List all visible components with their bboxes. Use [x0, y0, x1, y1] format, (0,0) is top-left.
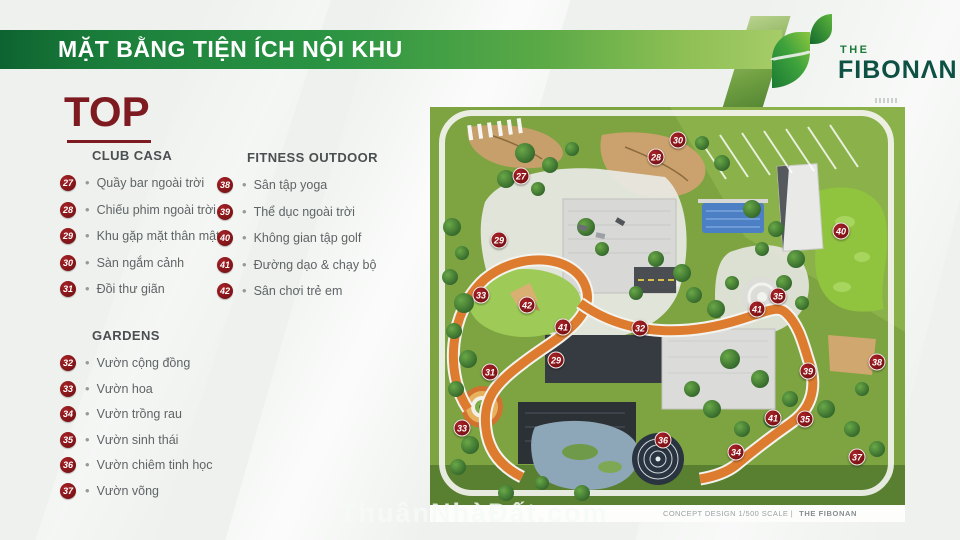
- legend-label: Quầy bar ngoài trời: [97, 176, 205, 190]
- map-marker-29: 29: [548, 352, 565, 369]
- bullet-icon: •: [85, 281, 90, 297]
- legend-item: 33 • Vườn hoa: [60, 381, 250, 397]
- map-marker-38: 38: [869, 354, 886, 371]
- legend-item: 40 • Không gian tập golf: [217, 230, 407, 246]
- bullet-icon: •: [85, 457, 90, 473]
- map-marker-29: 29: [491, 232, 508, 249]
- legend-marker: 27: [60, 175, 76, 191]
- legend-label: Vườn cộng đồng: [97, 356, 191, 370]
- legend-label: Vườn trồng rau: [97, 407, 182, 421]
- legend-marker: 30: [60, 255, 76, 271]
- map-marker-40: 40: [833, 223, 850, 240]
- bullet-icon: •: [85, 355, 90, 371]
- map-marker-41: 41: [555, 319, 572, 336]
- slide: MẶT BẰNG TIỆN ÍCH NỘI KHU THE FIBONΛN TO…: [0, 0, 960, 540]
- legend-label: Khu gặp mặt thân mật: [97, 229, 220, 243]
- legend-marker: 34: [60, 406, 76, 422]
- legend-label: Thể dục ngoài trời: [254, 205, 355, 219]
- legend-group-title: GARDENS: [92, 328, 250, 343]
- map-marker-41: 41: [765, 410, 782, 427]
- bullet-icon: •: [85, 406, 90, 422]
- legend-marker: 31: [60, 281, 76, 297]
- legend-item: 36 • Vườn chiêm tinh học: [60, 457, 250, 473]
- legend-label: Sân chơi trẻ em: [254, 284, 343, 298]
- legend-item: 34 • Vườn trồng rau: [60, 406, 250, 422]
- map-marker-32: 32: [632, 320, 649, 337]
- legend-label: Vườn sinh thái: [97, 433, 179, 447]
- bullet-icon: •: [242, 204, 247, 220]
- masterplan-image: 27 28 30 29 40 33 42 41 32 35 41 29 31 3…: [430, 107, 905, 505]
- legend-label: Vườn hoa: [97, 382, 153, 396]
- section-title: TOP: [64, 88, 150, 136]
- map-marker-35: 35: [770, 288, 787, 305]
- brand-logo: THE FIBONΛN: [752, 10, 952, 105]
- legend-label: Đồi thư giãn: [97, 282, 165, 296]
- logo-text-name: FIBONΛN: [838, 56, 958, 85]
- bullet-icon: •: [242, 283, 247, 299]
- map-marker-37: 37: [849, 449, 866, 466]
- bullet-icon: •: [242, 257, 247, 273]
- legend-item: 39 • Thể dục ngoài trời: [217, 204, 407, 220]
- map-marker-34: 34: [728, 444, 745, 461]
- legend-marker: 29: [60, 228, 76, 244]
- legend-label: Chiếu phim ngoài trời: [97, 203, 216, 217]
- legend-label: Đường dạo & chạy bộ: [254, 258, 377, 272]
- legend-label: Sân tập yoga: [254, 178, 328, 192]
- bullet-icon: •: [85, 381, 90, 397]
- map-marker-28: 28: [648, 149, 665, 166]
- bullet-icon: •: [85, 483, 90, 499]
- legend-item: 32 • Vườn cộng đồng: [60, 355, 250, 371]
- legend-group-fitness-outdoor: FITNESS OUTDOOR 38 • Sân tập yoga 39 • T…: [217, 150, 407, 310]
- map-caption: CONCEPT DESIGN 1/500 SCALE |: [663, 509, 793, 518]
- legend-label: Vườn võng: [97, 484, 159, 498]
- map-marker-27: 27: [513, 168, 530, 185]
- bullet-icon: •: [242, 230, 247, 246]
- map-marker-33: 33: [473, 287, 490, 304]
- map-marker-30: 30: [670, 132, 687, 149]
- map-marker-33: 33: [454, 420, 471, 437]
- leaf-icon: [770, 14, 834, 94]
- map-marker-39: 39: [800, 363, 817, 380]
- map-marker-31: 31: [482, 364, 499, 381]
- legend-marker: 33: [60, 381, 76, 397]
- bullet-icon: •: [85, 228, 90, 244]
- map-marker-35: 35: [797, 411, 814, 428]
- legend-label: Vườn chiêm tinh học: [97, 458, 213, 472]
- map-caption-brand: THE FIBONAN: [799, 509, 857, 518]
- legend-marker: 28: [60, 202, 76, 218]
- fine-print: [875, 98, 897, 103]
- map-marker-42: 42: [519, 297, 536, 314]
- legend-marker: 39: [217, 204, 233, 220]
- legend-marker: 38: [217, 177, 233, 193]
- bullet-icon: •: [85, 255, 90, 271]
- legend-marker: 42: [217, 283, 233, 299]
- bullet-icon: •: [85, 175, 90, 191]
- legend-marker: 32: [60, 355, 76, 371]
- legend-item: 42 • Sân chơi trẻ em: [217, 283, 407, 299]
- logo-text-the: THE: [840, 44, 870, 56]
- legend-item: 41 • Đường dạo & chạy bộ: [217, 257, 407, 273]
- map-marker-36: 36: [655, 432, 672, 449]
- legend-item: 38 • Sân tập yoga: [217, 177, 407, 193]
- header-bar: MẶT BẰNG TIỆN ÍCH NỘI KHU: [0, 30, 782, 69]
- legend-group-title: FITNESS OUTDOOR: [247, 150, 407, 165]
- legend-label: Sàn ngắm cảnh: [97, 256, 185, 270]
- legend-marker: 35: [60, 432, 76, 448]
- legend-marker: 40: [217, 230, 233, 246]
- map-marker-41: 41: [749, 301, 766, 318]
- bullet-icon: •: [85, 432, 90, 448]
- watermark: ThuânNhàĐất.com: [340, 498, 609, 529]
- legend-item: 37 • Vườn võng: [60, 483, 250, 499]
- legend-label: Không gian tập golf: [254, 231, 362, 245]
- legend-marker: 37: [60, 483, 76, 499]
- legend-marker: 41: [217, 257, 233, 273]
- bullet-icon: •: [85, 202, 90, 218]
- golf-green: [815, 187, 887, 311]
- section-title-underline: [67, 140, 151, 143]
- page-title: MẶT BẰNG TIỆN ÍCH NỘI KHU: [0, 36, 403, 63]
- bullet-icon: •: [242, 177, 247, 193]
- legend-group-gardens: GARDENS 32 • Vườn cộng đồng 33 • Vườn ho…: [60, 328, 250, 508]
- legend-marker: 36: [60, 457, 76, 473]
- legend-item: 35 • Vườn sinh thái: [60, 432, 250, 448]
